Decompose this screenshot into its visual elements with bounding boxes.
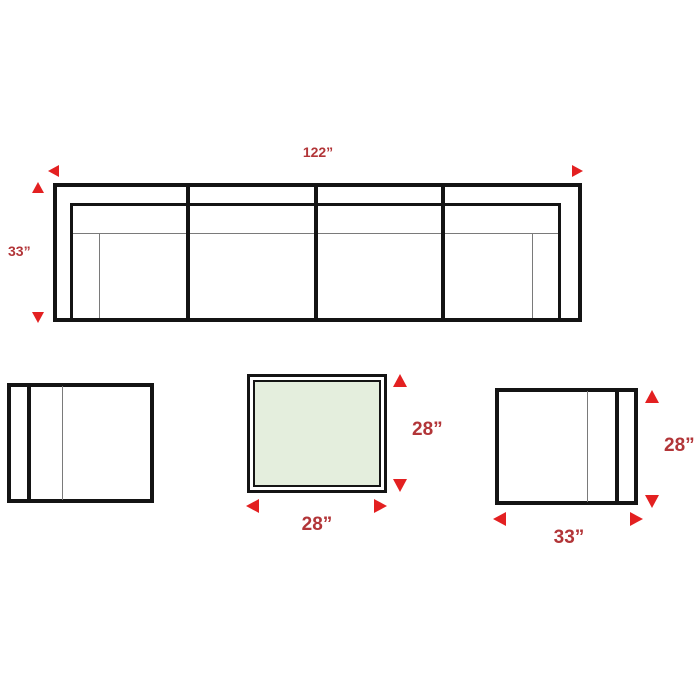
right-chair-arm-line — [615, 388, 619, 505]
sofa-section-divider-2 — [314, 183, 318, 322]
arrowhead-down-icon — [645, 495, 659, 508]
sofa-right-cushion-line — [532, 234, 533, 318]
arrowhead-up-icon — [32, 182, 44, 193]
chair-depth-dimension-arrow — [645, 390, 659, 508]
chair-depth-label: 28” — [664, 436, 695, 457]
arrowhead-down-icon — [32, 312, 44, 323]
left-chair-arm-line — [27, 383, 31, 503]
arrowhead-right-icon — [374, 499, 387, 513]
arrowhead-up-icon — [393, 374, 407, 387]
arrowhead-up-icon — [645, 390, 659, 403]
arrowhead-left-icon — [493, 512, 506, 526]
sofa-section-divider-1 — [186, 183, 190, 322]
arrowhead-left-icon — [246, 499, 259, 513]
table-depth-label: 28” — [412, 420, 443, 441]
left-chair-cushion-line — [62, 386, 63, 500]
sofa-depth-dimension-arrow — [32, 182, 44, 323]
arrowhead-left-icon — [48, 165, 59, 177]
coffee-table-glass-top — [253, 380, 381, 487]
arrowhead-right-icon — [630, 512, 643, 526]
arrowhead-right-icon — [572, 165, 583, 177]
sofa-section-divider-3 — [441, 183, 445, 322]
table-width-dimension-arrow — [246, 499, 387, 513]
furniture-dimension-diagram: 122” 33” 28” 28” 28” — [0, 0, 700, 700]
sofa-depth-label: 33” — [8, 244, 31, 259]
sofa-width-label: 122” — [283, 145, 353, 160]
table-depth-dimension-arrow — [393, 374, 407, 492]
arrowhead-down-icon — [393, 479, 407, 492]
sofa-left-cushion-line — [99, 234, 100, 318]
sofa-width-dimension-arrow — [48, 165, 583, 177]
chair-width-dimension-arrow — [493, 512, 643, 526]
coffee-table-outline — [247, 374, 387, 493]
chair-width-label: 33” — [538, 528, 600, 549]
table-width-label: 28” — [286, 515, 348, 536]
right-chair-cushion-line — [587, 391, 588, 502]
